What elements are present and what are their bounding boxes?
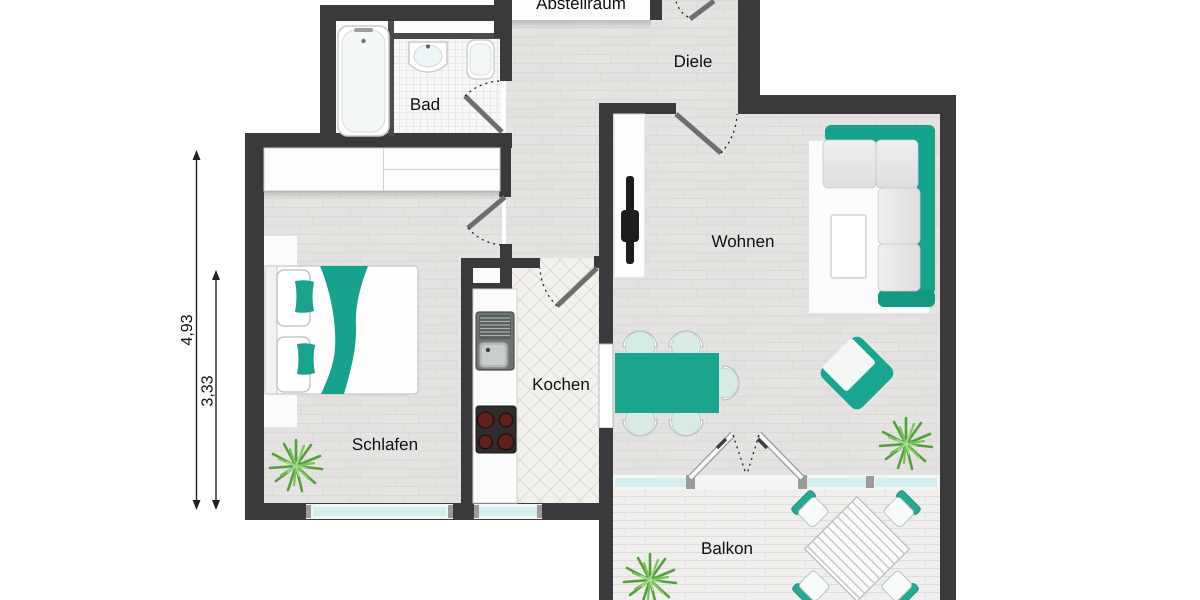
svg-text:4,93: 4,93 <box>179 314 196 345</box>
svg-text:Kochen: Kochen <box>532 375 590 394</box>
svg-text:Bad: Bad <box>410 95 440 114</box>
svg-text:Balkon: Balkon <box>701 539 753 558</box>
svg-text:Abstellraum: Abstellraum <box>536 0 626 13</box>
svg-text:Wohnen: Wohnen <box>711 232 774 251</box>
svg-text:3,33: 3,33 <box>200 375 217 406</box>
svg-text:Diele: Diele <box>674 52 713 71</box>
svg-text:Schlafen: Schlafen <box>352 435 418 454</box>
